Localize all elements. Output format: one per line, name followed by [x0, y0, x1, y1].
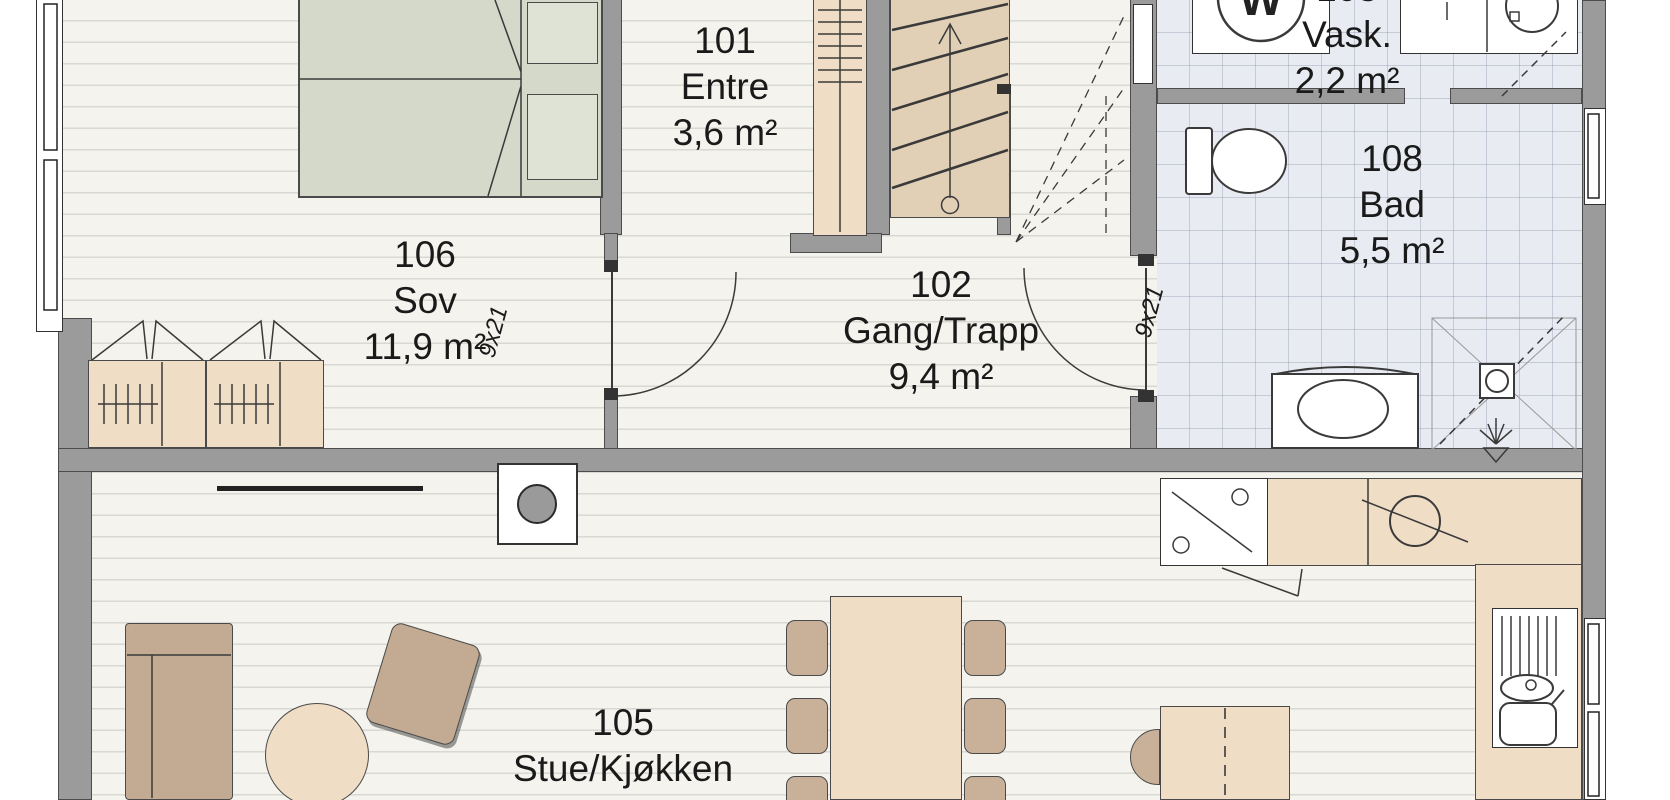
wall-sov-entre: [600, 0, 622, 235]
wall-gang-bad-lower: [1130, 396, 1157, 450]
wall-entre-gang: [790, 233, 882, 253]
room-name: Bad: [1302, 182, 1482, 228]
sofa: [125, 623, 233, 800]
desk-table: [1160, 706, 1290, 800]
window-right-bad: [1584, 108, 1606, 205]
room-label-gang: 102 Gang/Trapp 9,4 m²: [831, 262, 1051, 400]
wall-sov-gang-upper: [604, 233, 618, 264]
dining-chair: [786, 620, 828, 676]
right-margin: [1606, 0, 1670, 800]
wall-left-exterior: [58, 318, 92, 800]
fireplace-flue-icon: [517, 484, 557, 524]
wall-vask-bad-right: [1450, 88, 1582, 104]
room-number: 102: [831, 262, 1051, 308]
washing-machine-label: W: [1231, 0, 1291, 26]
dining-chair: [786, 776, 828, 800]
room-label-bad: 108 Bad 5,5 m²: [1302, 136, 1482, 274]
room-name: Entre: [625, 64, 825, 110]
dining-chair: [786, 698, 828, 754]
room-number: 101: [625, 18, 825, 64]
stairs: [890, 0, 1010, 218]
room-label-stue: 105 Stue/Kjøkken 34,6 m²: [473, 700, 773, 800]
floor-plan: 106 Sov 11,9 m² 101 Entre 3,6 m² 102 Gan…: [0, 0, 1670, 800]
dining-table: [830, 596, 962, 800]
wall-entre-stair: [866, 0, 890, 235]
wall-main-horizontal: [58, 448, 1604, 472]
room-area: 5,5 m²: [1302, 228, 1482, 274]
room-area: 2,2 m²: [1257, 58, 1437, 104]
dishwasher: [1160, 478, 1268, 566]
room-name: Stue/Kjøkken: [473, 746, 773, 792]
room-number: 105: [473, 700, 773, 746]
window-left: [36, 0, 63, 332]
room-area: 34,6 m²: [473, 792, 773, 800]
vask-door-leaf: [1133, 4, 1153, 84]
dining-chair: [964, 698, 1006, 754]
window-right-kitchen: [1584, 618, 1606, 800]
room-number: 106: [330, 232, 520, 278]
room-area: 9,4 m²: [831, 354, 1051, 400]
kitchen-sink-unit: [1492, 608, 1578, 748]
left-margin: [0, 0, 36, 800]
wardrobe: [206, 360, 324, 448]
wardrobe: [88, 360, 206, 448]
room-label-entre: 101 Entre 3,6 m²: [625, 18, 825, 156]
room-area: 3,6 m²: [625, 110, 825, 156]
dining-chair: [964, 620, 1006, 676]
round-table: [265, 703, 369, 800]
wall-sov-gang-lower: [604, 396, 618, 450]
room-name: Gang/Trapp: [831, 308, 1051, 354]
tv-bench: [217, 486, 423, 491]
room-number: 108: [1302, 136, 1482, 182]
bed-pillow: [527, 2, 598, 64]
dining-chair: [964, 776, 1006, 800]
bed-pillow: [527, 94, 598, 180]
